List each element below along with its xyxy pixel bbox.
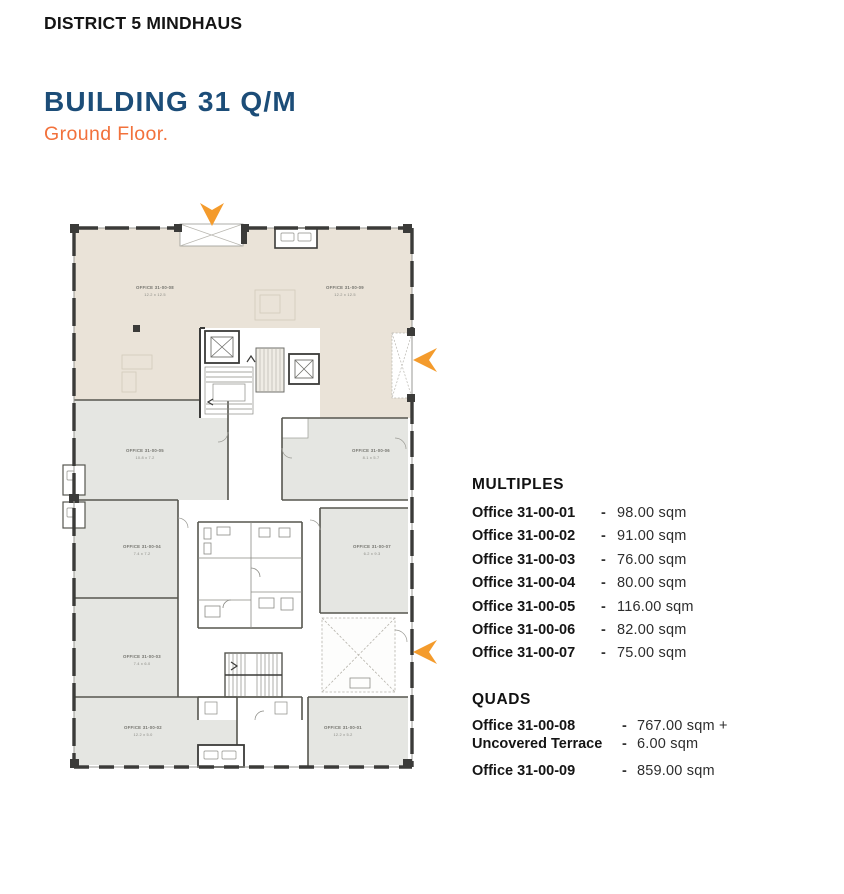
arrow-down-icon xyxy=(200,203,224,226)
label-office-31-00-02: OFFICE 31-00-02 xyxy=(124,725,162,730)
unit-name: Office 31-00-04 xyxy=(472,572,601,595)
dash: - xyxy=(601,619,617,642)
dash: - xyxy=(601,642,617,665)
unit-area: 91.00 sqm xyxy=(617,525,772,548)
dims-office-31-00-06: 8.1 x 5.7 xyxy=(363,455,380,460)
dash: - xyxy=(601,525,617,548)
multiples-heading: MULTIPLES xyxy=(472,476,772,494)
unit-name: Office 31-00-09 xyxy=(472,760,622,783)
bottom-inset-box xyxy=(198,745,244,767)
dims-office-31-00-01: 12.2 x 5.2 xyxy=(333,732,352,737)
room-office-31-00-03 xyxy=(74,598,178,697)
label-office-31-00-06: OFFICE 31-00-06 xyxy=(352,448,390,453)
unit-area: 75.00 sqm xyxy=(617,642,772,665)
legend-row: Uncovered Terrace - 6.00 sqm xyxy=(472,735,772,754)
top-shaft-box xyxy=(275,228,317,248)
dash: - xyxy=(601,596,617,619)
unit-area: 859.00 sqm xyxy=(637,760,772,783)
legend-row: Office 31-00-04 - 80.00 sqm xyxy=(472,572,772,595)
legend-row: Office 31-00-07 - 75.00 sqm xyxy=(472,642,772,665)
dims-office-31-00-09: 12.2 x 12.5 xyxy=(334,292,355,297)
dims-office-31-00-04: 7.4 x 7.2 xyxy=(134,551,151,556)
unit-name: Office 31-00-03 xyxy=(472,549,601,572)
legend-row: Office 31-00-02 - 91.00 sqm xyxy=(472,525,772,548)
uncovered-terrace xyxy=(322,618,395,692)
dash: - xyxy=(601,502,617,525)
dash: - xyxy=(601,549,617,572)
room-office-31-00-04 xyxy=(74,500,178,598)
dims-office-31-00-03: 7.4 x 6.0 xyxy=(134,661,151,666)
arrow-left-icon xyxy=(413,640,437,664)
dims-office-31-00-05: 10.8 x 7.2 xyxy=(135,455,154,460)
floor-subtitle: Ground Floor. xyxy=(44,123,168,146)
unit-area: 116.00 sqm xyxy=(617,596,772,619)
unit-area: 76.00 sqm xyxy=(617,549,772,572)
unit-name: Office 31-00-01 xyxy=(472,502,601,525)
legend-row: Office 31-00-06 - 82.00 sqm xyxy=(472,619,772,642)
label-office-31-00-09: OFFICE 31-00-09 xyxy=(326,285,364,290)
legend-row: Office 31-00-03 - 76.00 sqm xyxy=(472,549,772,572)
unit-area: 82.00 sqm xyxy=(617,619,772,642)
dash: - xyxy=(601,572,617,595)
room-office-31-00-01 xyxy=(308,697,408,765)
dims-office-31-00-02: 12.2 x 5.0 xyxy=(133,732,153,737)
structural-column xyxy=(133,325,140,332)
legend-row: Office 31-00-01 - 98.00 sqm xyxy=(472,502,772,525)
unit-name: Office 31-00-08 xyxy=(472,717,622,736)
unit-name: Office 31-00-05 xyxy=(472,596,601,619)
dash: - xyxy=(622,760,637,783)
dims-office-31-00-08: 12.2 x 12.5 xyxy=(144,292,165,297)
unit-area: 6.00 sqm xyxy=(637,735,772,754)
label-office-31-00-08: OFFICE 31-00-08 xyxy=(136,285,174,290)
unit-name: Office 31-00-07 xyxy=(472,642,601,665)
quads-heading: QUADS xyxy=(472,691,772,709)
quads-section: QUADS Office 31-00-08 - 767.00 sqm + Unc… xyxy=(472,691,772,783)
page-title: BUILDING 31 Q/M xyxy=(44,86,297,118)
arrow-left-icon xyxy=(413,348,437,372)
legend-row: Office 31-00-08 - 767.00 sqm + xyxy=(472,717,772,736)
dash: - xyxy=(622,735,637,754)
unit-name: Uncovered Terrace xyxy=(472,735,622,754)
legend-row: Office 31-00-09 - 859.00 sqm xyxy=(472,760,772,783)
label-office-31-00-03: OFFICE 31-00-03 xyxy=(123,654,161,659)
district-label: DISTRICT 5 MINDHAUS xyxy=(44,13,242,34)
label-office-31-00-07: OFFICE 31-00-07 xyxy=(353,544,391,549)
unit-name: Office 31-00-02 xyxy=(472,525,601,548)
floor-plan-drawing: OFFICE 31-00-08 12.2 x 12.5 OFFICE 31-00… xyxy=(55,200,445,810)
label-office-31-00-01: OFFICE 31-00-01 xyxy=(324,725,362,730)
page: DISTRICT 5 MINDHAUS BUILDING 31 Q/M Grou… xyxy=(0,0,844,894)
unit-area: 767.00 sqm + xyxy=(637,717,772,736)
unit-name: Office 31-00-06 xyxy=(472,619,601,642)
label-office-31-00-05: OFFICE 31-00-05 xyxy=(126,448,164,453)
multiples-section: MULTIPLES Office 31-00-01 - 98.00 sqm Of… xyxy=(472,476,772,666)
lower-staircase xyxy=(225,653,282,697)
entrance-box xyxy=(180,224,243,246)
legend-row: Office 31-00-05 - 116.00 sqm xyxy=(472,596,772,619)
unit-area: 80.00 sqm xyxy=(617,572,772,595)
dims-office-31-00-07: 6.2 x 9.3 xyxy=(364,551,381,556)
dash: - xyxy=(622,717,637,736)
room-office-31-00-07 xyxy=(320,508,408,613)
unit-area: 98.00 sqm xyxy=(617,502,772,525)
label-office-31-00-04: OFFICE 31-00-04 xyxy=(123,544,161,549)
legend: MULTIPLES Office 31-00-01 - 98.00 sqm Of… xyxy=(472,476,772,783)
floor-plan: OFFICE 31-00-08 12.2 x 12.5 OFFICE 31-00… xyxy=(55,200,445,810)
